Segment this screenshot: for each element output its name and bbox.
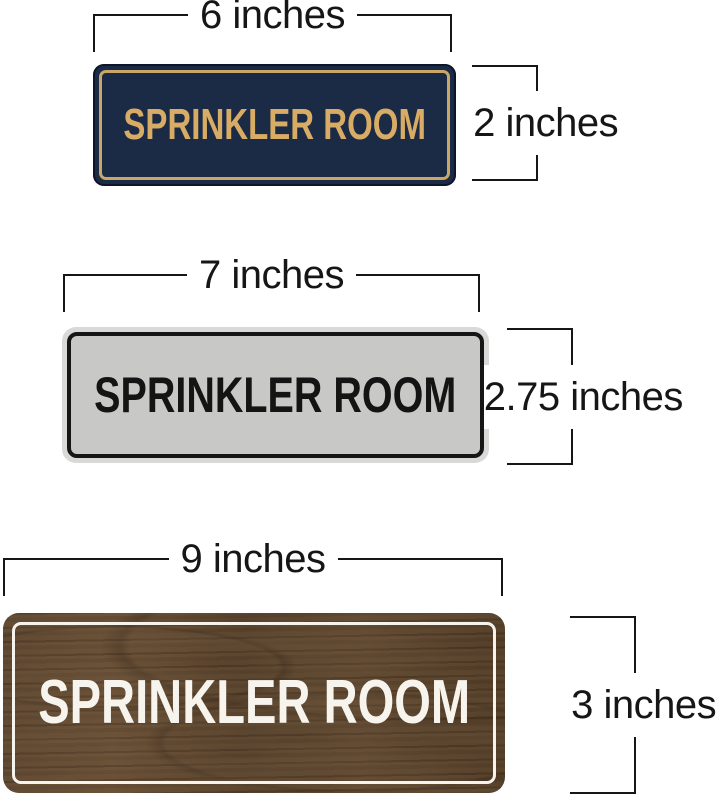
width-bracket-sign2: 7 inches xyxy=(63,255,480,295)
width-dimension-label: 6 inches xyxy=(188,0,357,35)
sign-walnut-wood: SPRINKLER ROOM xyxy=(3,613,505,793)
size-comparison-diagram: 6 inches SPRINKLER ROOM 2 inches 7 inche… xyxy=(0,0,722,805)
dimension-tick xyxy=(93,14,95,52)
dimension-line xyxy=(357,14,452,16)
height-bracket-sign3: 3 inches xyxy=(570,616,636,794)
dimension-tick xyxy=(63,274,65,312)
dimension-tick xyxy=(478,274,480,312)
dimension-tick xyxy=(472,179,538,181)
sign-silver-black: SPRINKLER ROOM xyxy=(62,327,489,463)
width-dimension-label: 7 inches xyxy=(187,255,356,295)
height-bracket-sign2: 2.75 inches xyxy=(507,328,573,465)
dimension-tick xyxy=(501,558,503,596)
dimension-tick xyxy=(472,65,538,67)
dimension-tick xyxy=(507,328,573,330)
dimension-line xyxy=(93,14,188,16)
dimension-tick xyxy=(3,558,5,596)
dimension-tick xyxy=(570,616,636,618)
sign-title-text: SPRINKLER ROOM xyxy=(38,672,470,734)
dimension-line xyxy=(338,558,504,560)
width-dimension-label: 9 inches xyxy=(169,539,338,579)
dimension-tick xyxy=(450,14,452,52)
dimension-tick xyxy=(507,463,573,465)
sign-title-text: SPRINKLER ROOM xyxy=(94,370,456,420)
dimension-line xyxy=(3,558,169,560)
sign-title-text: SPRINKLER ROOM xyxy=(123,103,426,147)
dimension-line xyxy=(63,274,187,276)
dimension-tick xyxy=(570,792,636,794)
width-bracket-sign1: 6 inches xyxy=(93,0,452,35)
sign-navy-gold: SPRINKLER ROOM xyxy=(93,64,456,186)
height-dimension-label: 2.75 inches xyxy=(480,365,687,429)
height-bracket-sign1: 2 inches xyxy=(472,65,538,181)
height-dimension-label: 3 inches xyxy=(567,673,720,737)
height-dimension-label: 2 inches xyxy=(469,91,622,155)
dimension-line xyxy=(356,274,480,276)
width-bracket-sign3: 9 inches xyxy=(3,539,503,579)
